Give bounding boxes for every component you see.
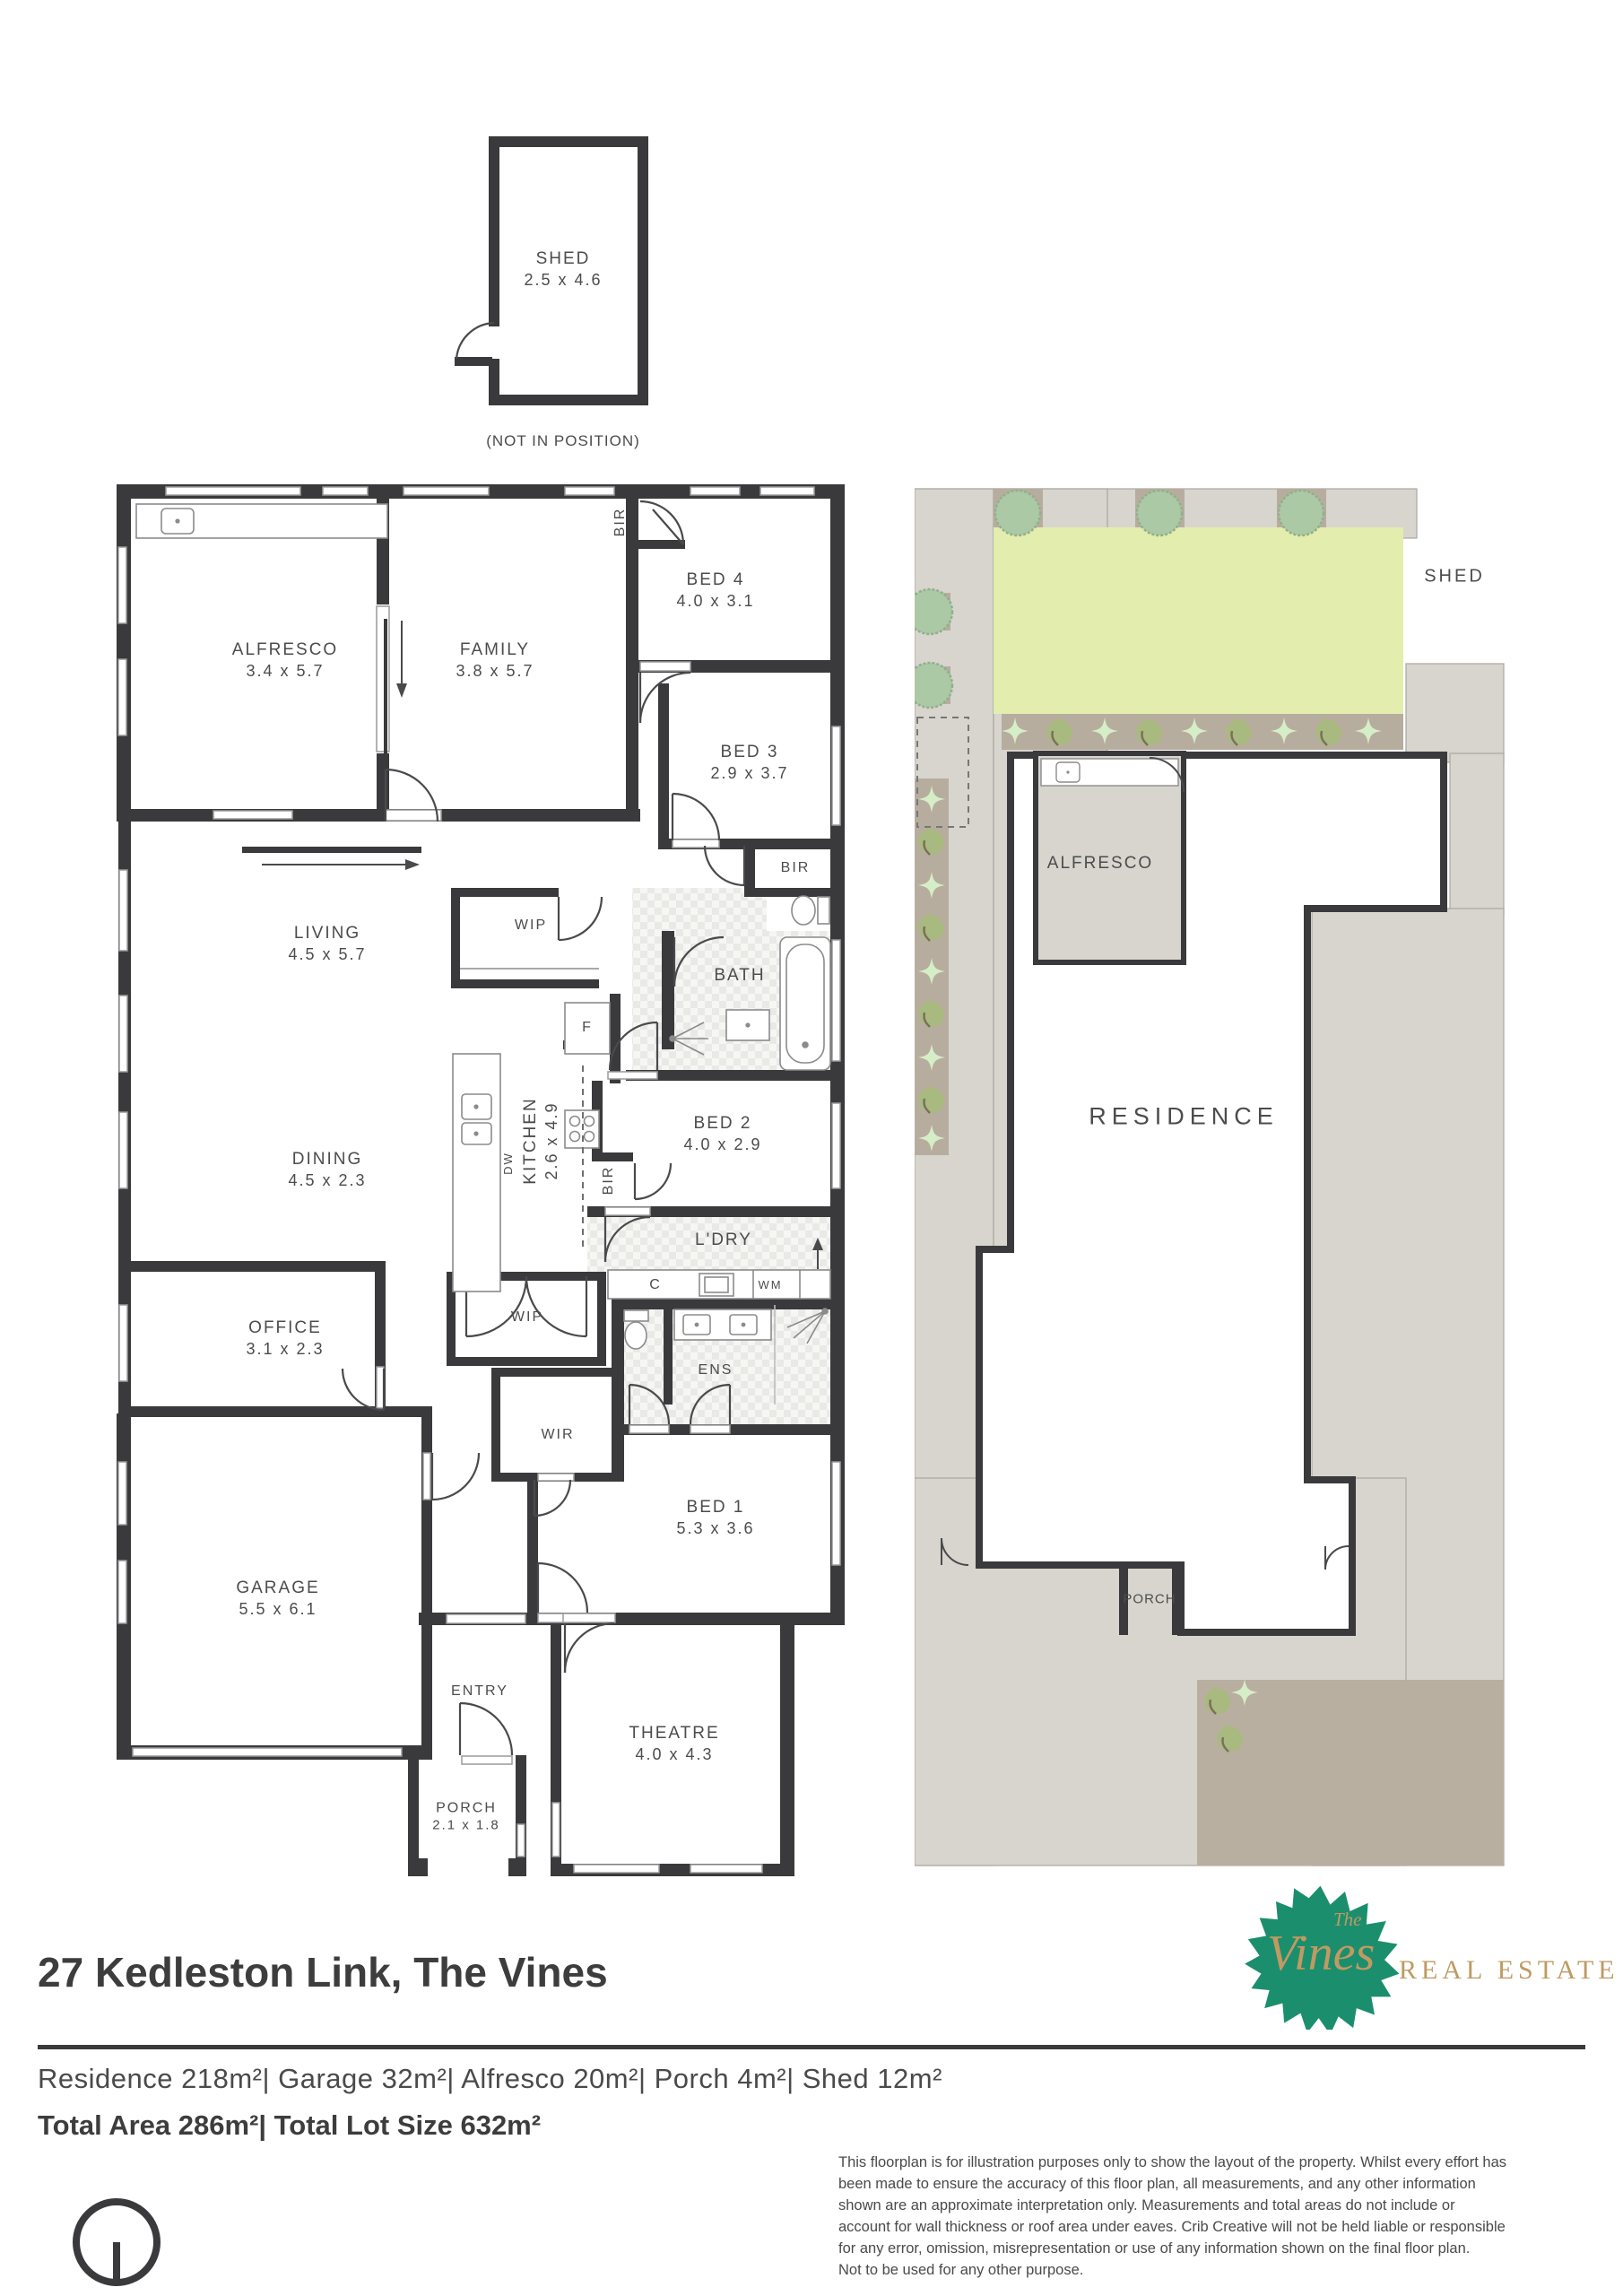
robe-bir-bed3: BIR [781,859,811,877]
room-bed2: BED 24.0 x 2.9 [683,1113,761,1154]
property-address: 27 Kedleston Link, The Vines [38,1948,608,1996]
disclaimer-text: This floorplan is for illustration purpo… [838,2152,1538,2282]
area-summary: Residence 218m²| Garage 32m²| Alfresco 2… [38,2063,942,2095]
room-bed3: BED 32.9 x 3.7 [710,742,788,783]
compass-icon [68,2196,167,2294]
total-areas: Total Area 286m²| Total Lot Size 632m² [38,2109,541,2142]
room-porch: PORCH2.1 x 1.8 [432,1800,500,1835]
room-living: LIVING4.5 x 5.7 [288,923,366,964]
floorplan-labels: ALFRESCO3.4 x 5.7 FAMILY3.8 x 5.7 BIR BE… [117,484,845,1876]
room-entry: ENTRY [451,1683,508,1700]
room-dining: DINING4.5 x 2.3 [288,1149,366,1190]
shed-diagram-label: SHED 2.5 x 4.6 [524,248,602,290]
site-plan-labels: SHED ALFRESCO RESIDENCE PORCH [915,487,1517,1875]
room-office: OFFICE3.1 x 2.3 [246,1318,324,1359]
room-bed1: BED 15.3 x 3.6 [676,1497,754,1538]
room-alfresco: ALFRESCO3.4 x 5.7 [232,639,338,681]
room-family: FAMILY3.8 x 5.7 [456,639,534,681]
shed-note: (NOT IN POSITION) [486,432,640,450]
site-porch-label: PORCH [1123,1592,1176,1607]
room-laundry: L'DRY [695,1230,752,1251]
room-wip-2: WIP [511,1309,543,1326]
floorplan-page: { "colors": { "wall": "#3a3a3c", "label_… [0,0,1623,2296]
room-wir: WIR [541,1426,574,1444]
washing-machine-label: WM [758,1278,782,1292]
room-bath: BATH [714,965,765,987]
robe-bir-bed2: BIR [600,1166,618,1196]
room-wip-pantry: WIP [515,917,547,935]
logo-name: Vines [1267,1925,1375,1982]
site-alfresco-label: ALFRESCO [1047,854,1153,874]
divider-rule [38,2045,1585,2049]
logo-tagline: REAL ESTATE [1399,1955,1619,1986]
room-ensuite: ENS [699,1361,733,1379]
shed-door-arc [456,323,494,359]
fridge-label: F [582,1019,593,1037]
site-shed-label: SHED [1424,567,1485,587]
site-residence-label: RESIDENCE [1089,1103,1279,1131]
room-bed4: BED 44.0 x 3.1 [676,570,754,611]
room-kitchen: KITCHEN2.6 x 4.9 [520,1097,561,1184]
robe-bir-bed4: BIR [612,508,629,537]
room-theatre: THEATRE4.0 x 4.3 [629,1723,719,1764]
room-garage: GARAGE5.5 x 6.1 [236,1578,319,1619]
cupboard-label: C [649,1276,662,1294]
dishwasher-label: DW [501,1152,516,1175]
